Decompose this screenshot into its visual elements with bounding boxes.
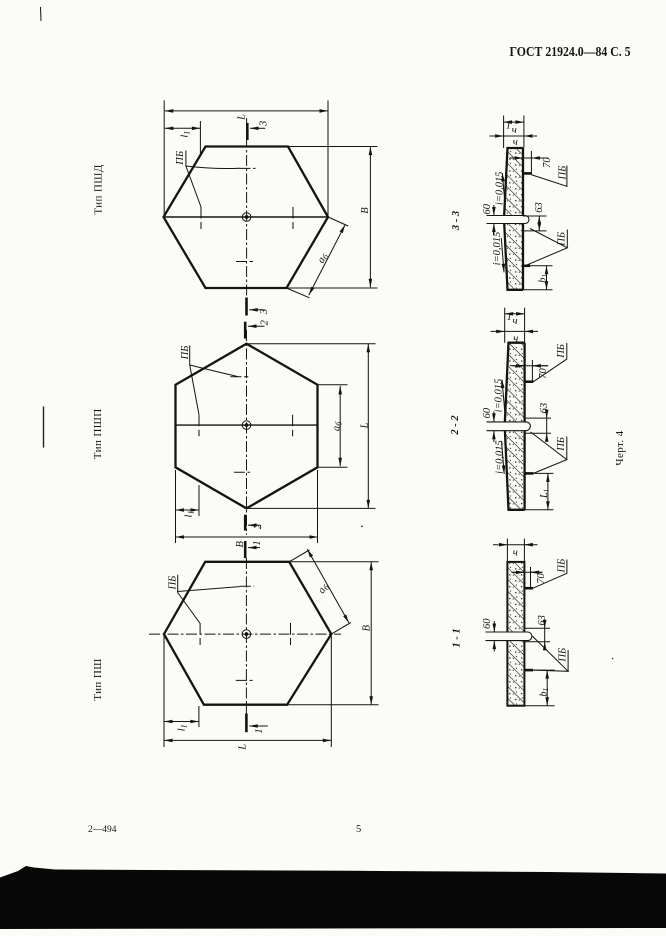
svg-text:ПБ: ПБ <box>167 576 178 591</box>
svg-text:2 - 2: 2 - 2 <box>450 415 461 436</box>
svg-text:ч: ч <box>513 333 518 344</box>
svg-text:60: 60 <box>482 203 493 214</box>
svg-text:ч: ч <box>513 137 518 148</box>
svg-text:L: L <box>237 744 248 751</box>
svg-text:60: 60 <box>482 618 493 629</box>
svg-text:1: 1 <box>252 540 263 545</box>
svg-text:аб: аб <box>331 421 343 431</box>
svg-text:60: 60 <box>482 407 493 418</box>
svg-text:63: 63 <box>537 615 548 626</box>
svg-text:Тип ПШ: Тип ПШ <box>92 658 104 700</box>
svg-text:i=0,015: i=0,015 <box>492 232 503 266</box>
svg-text:70: 70 <box>542 157 553 168</box>
svg-text:63: 63 <box>539 403 550 414</box>
svg-text:ПБ: ПБ <box>558 648 569 663</box>
svg-text:ПБ: ПБ <box>556 344 567 359</box>
svg-text:2—494: 2—494 <box>88 825 117 835</box>
svg-text:ч: ч <box>512 125 517 136</box>
svg-text:70: 70 <box>536 573 547 584</box>
svg-text:1: 1 <box>507 312 512 323</box>
svg-text:ПБ: ПБ <box>180 346 191 361</box>
svg-text:1: 1 <box>506 121 511 132</box>
svg-text:3: 3 <box>259 121 270 127</box>
svg-text:L: L <box>360 422 371 429</box>
svg-text:2: 2 <box>259 319 270 325</box>
svg-text:ч: ч <box>512 316 517 327</box>
svg-text:2: 2 <box>253 523 264 529</box>
svg-text:1: 1 <box>254 728 265 733</box>
svg-text:Тип ПШД: Тип ПШД <box>93 164 105 214</box>
svg-text:1 - 1: 1 - 1 <box>451 628 462 647</box>
svg-text:ПБ: ПБ <box>175 151 186 166</box>
svg-text:Черт. 4: Черт. 4 <box>614 430 626 465</box>
svg-text:В: В <box>361 624 372 631</box>
svg-text:ПБ: ПБ <box>556 437 567 452</box>
svg-text:ПБ: ПБ <box>556 559 567 574</box>
svg-text:В: В <box>360 207 371 214</box>
svg-text:ч: ч <box>513 548 518 559</box>
svg-text:5: 5 <box>356 824 361 835</box>
svg-text:63: 63 <box>534 202 545 213</box>
svg-text:3: 3 <box>259 309 270 315</box>
svg-text:L: L <box>237 114 248 121</box>
svg-text:3 - 3: 3 - 3 <box>451 211 462 231</box>
svg-text:ГОСТ 21924.0—84 С. 5: ГОСТ 21924.0—84 С. 5 <box>510 44 631 59</box>
svg-text:Тип ПШП: Тип ПШП <box>92 408 104 459</box>
